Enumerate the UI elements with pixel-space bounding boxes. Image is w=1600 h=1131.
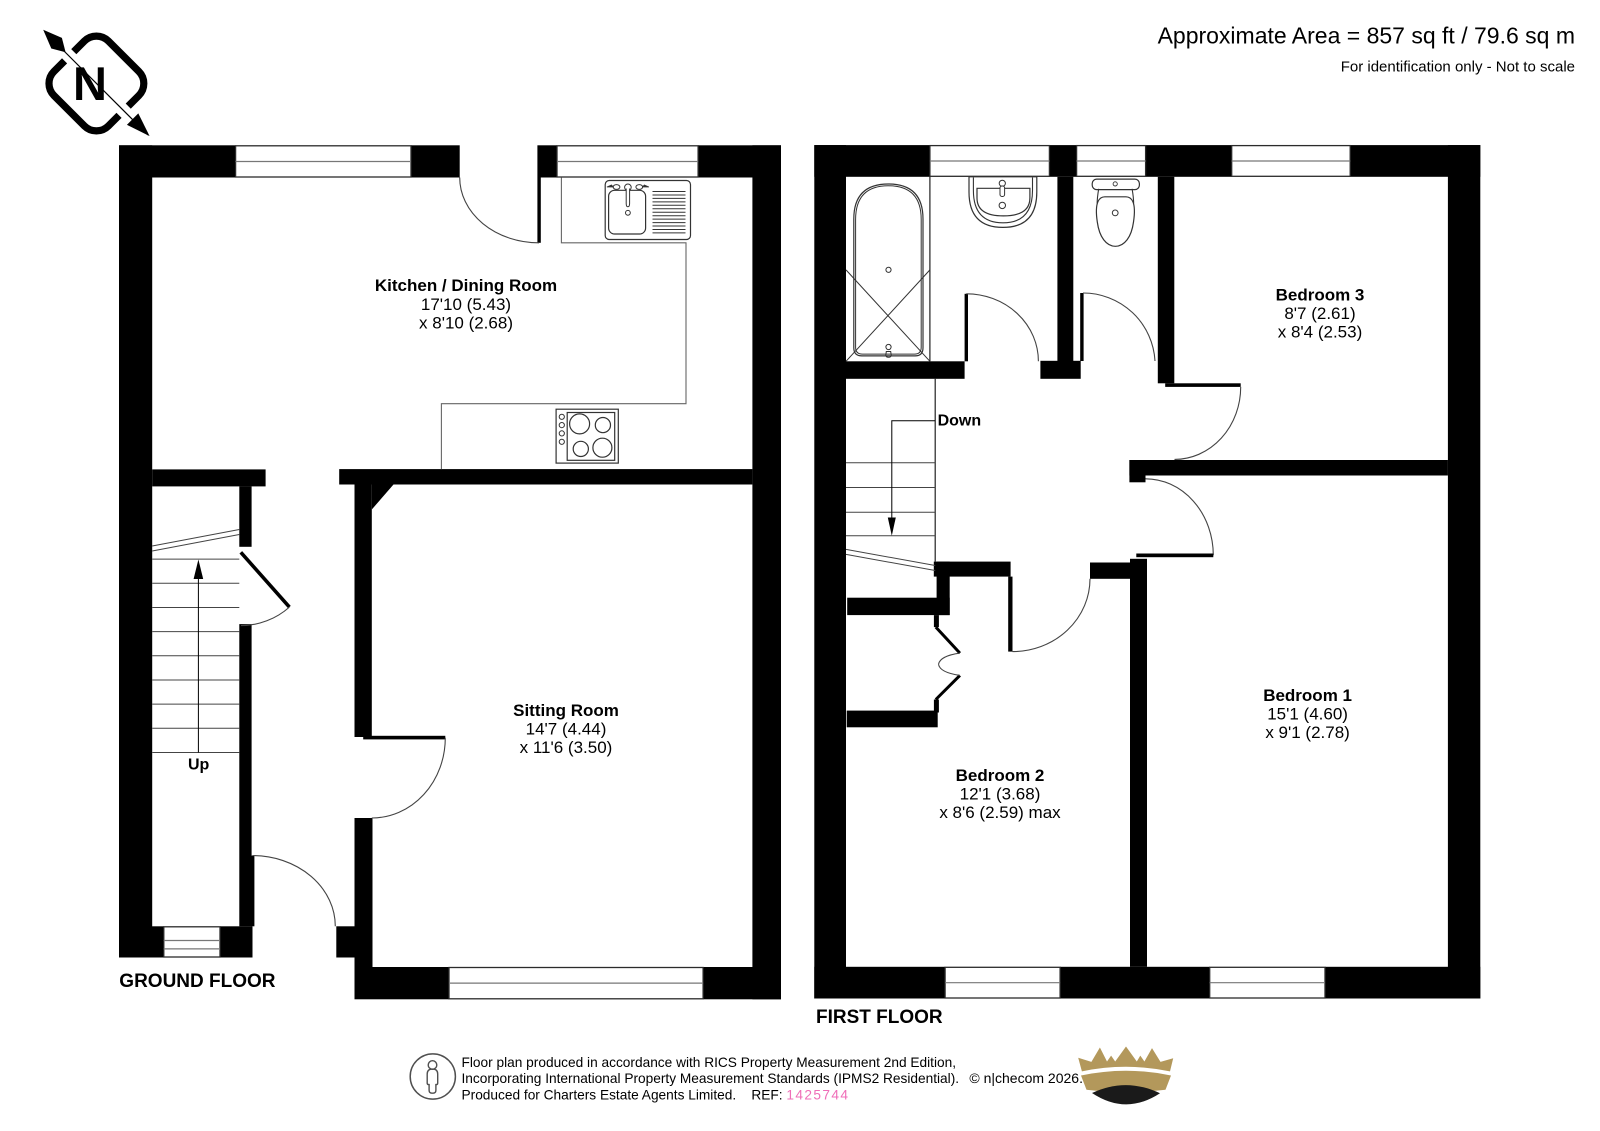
svg-text:x 9'1 (2.78): x 9'1 (2.78) [1265,723,1350,742]
svg-text:x 8'10 (2.68): x 8'10 (2.68) [419,314,513,333]
svg-text:GROUND FLOOR: GROUND FLOOR [119,971,275,992]
svg-text:x 11'6 (3.50): x 11'6 (3.50) [520,738,613,757]
svg-text:14'7 (4.44): 14'7 (4.44) [526,720,607,739]
svg-text:For identification only - Not: For identification only - Not to scale [1341,59,1575,76]
svg-text:17'10 (5.43): 17'10 (5.43) [421,295,511,314]
svg-text:15'1 (4.60): 15'1 (4.60) [1267,705,1348,724]
svg-text:Bedroom 3: Bedroom 3 [1276,286,1365,305]
svg-text:Down: Down [938,413,982,430]
svg-text:Incorporating International Pr: Incorporating International Property Mea… [462,1071,960,1086]
svg-text:12'1 (3.68): 12'1 (3.68) [960,785,1041,804]
svg-text:x 8'6 (2.59) max: x 8'6 (2.59) max [939,803,1061,822]
svg-text:Floor plan produced in accorda: Floor plan produced in accordance with R… [462,1055,957,1070]
svg-text:Up: Up [188,757,210,774]
svg-text:Approximate Area = 857 sq ft /: Approximate Area = 857 sq ft / 79.6 sq m [1158,23,1575,49]
svg-text:x 8'4 (2.53): x 8'4 (2.53) [1278,323,1363,342]
svg-text:Bedroom 1: Bedroom 1 [1263,686,1352,705]
svg-text:Kitchen / Dining Room: Kitchen / Dining Room [375,276,557,295]
svg-text:8'7 (2.61): 8'7 (2.61) [1284,304,1355,323]
svg-text:Produced for Charters Estate A: Produced for Charters Estate Agents Limi… [462,1088,850,1103]
svg-text:N: N [73,57,107,110]
svg-text:Sitting Room: Sitting Room [513,701,619,720]
svg-text:© n|checom 2026.: © n|checom 2026. [969,1070,1083,1086]
svg-text:FIRST FLOOR: FIRST FLOOR [816,1007,943,1028]
svg-text:Bedroom 2: Bedroom 2 [956,766,1045,785]
